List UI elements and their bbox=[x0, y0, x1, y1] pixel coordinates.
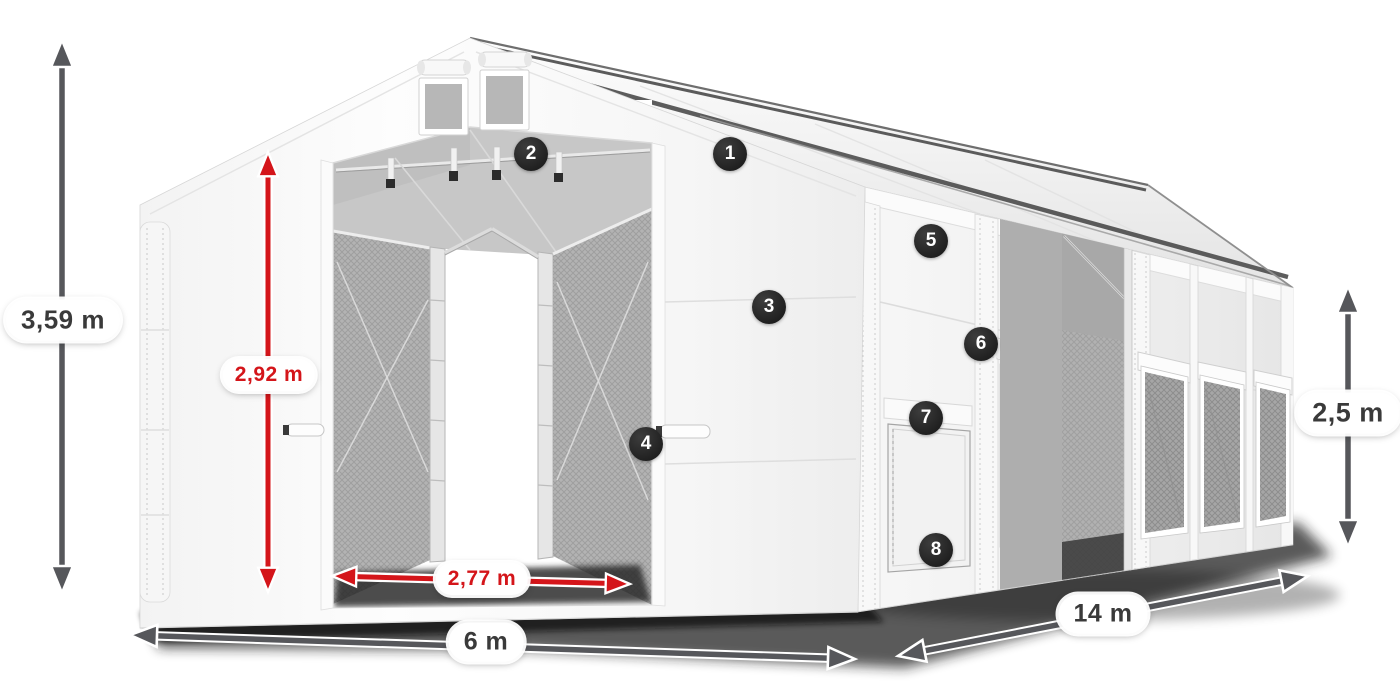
feature-marker-8[interactable]: 8 bbox=[919, 533, 953, 567]
total-height-label: 3,59 m bbox=[6, 300, 120, 341]
side-window bbox=[1198, 362, 1246, 533]
front-corner-post bbox=[140, 222, 170, 602]
door-jamb-left bbox=[321, 160, 333, 610]
feature-marker-3[interactable]: 3 bbox=[752, 290, 786, 324]
door-jamb-right bbox=[652, 143, 665, 606]
feature-marker-1[interactable]: 1 bbox=[713, 137, 747, 171]
door-height-label: 2,92 m bbox=[223, 359, 315, 391]
side-window bbox=[1138, 352, 1190, 539]
door-width-label: 2,77 m bbox=[436, 563, 528, 595]
front-width-label: 6 m bbox=[449, 623, 524, 662]
feature-marker-5[interactable]: 5 bbox=[914, 224, 948, 258]
feature-marker-2[interactable]: 2 bbox=[514, 137, 548, 171]
feature-marker-4[interactable]: 4 bbox=[629, 427, 663, 461]
tent-illustration bbox=[0, 0, 1400, 700]
feature-marker-7[interactable]: 7 bbox=[909, 401, 943, 435]
side-height-label: 2,5 m bbox=[1297, 393, 1399, 434]
tent-dimension-diagram: 3,59 m 2,92 m 2,77 m 6 m 14 m 2,5 m 1 2 … bbox=[0, 0, 1400, 700]
tent-interior bbox=[333, 100, 652, 612]
open-side-section bbox=[1000, 219, 1132, 596]
feature-marker-6[interactable]: 6 bbox=[964, 327, 998, 361]
length-label: 14 m bbox=[1059, 595, 1148, 634]
side-window bbox=[1254, 370, 1292, 527]
